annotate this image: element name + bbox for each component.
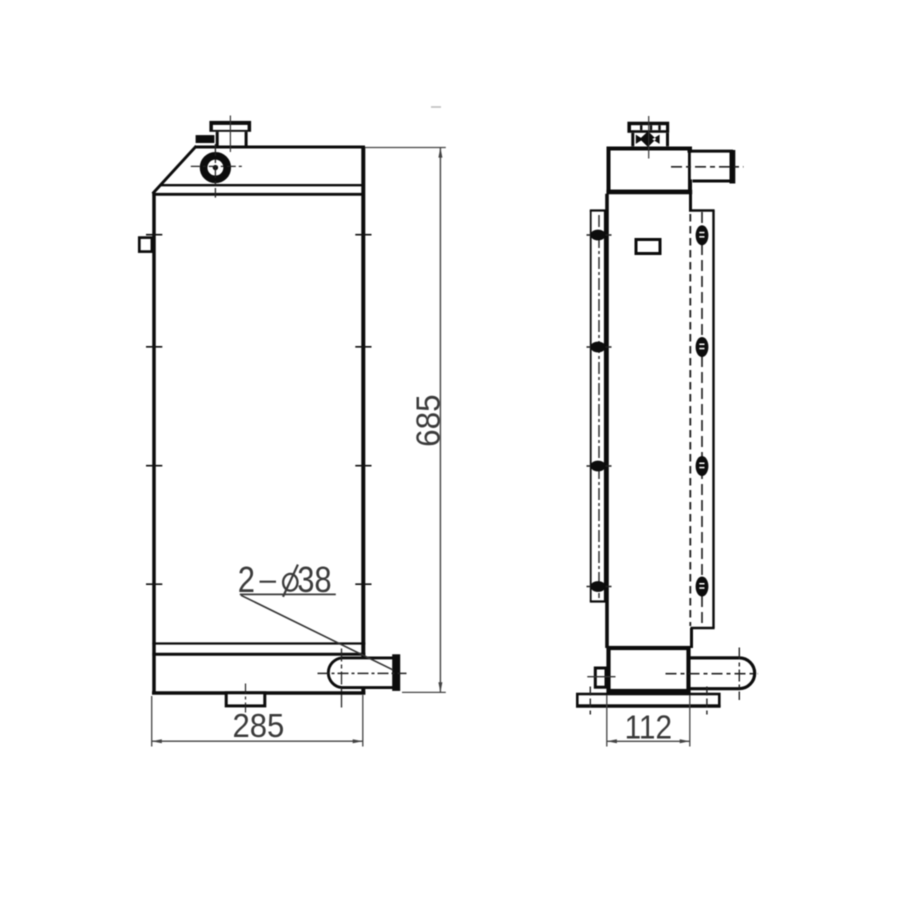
- svg-text:38: 38: [297, 561, 331, 601]
- svg-text:685: 685: [408, 394, 446, 446]
- svg-text:285: 285: [232, 707, 284, 744]
- svg-text:2: 2: [238, 561, 255, 601]
- svg-text:112: 112: [625, 708, 672, 746]
